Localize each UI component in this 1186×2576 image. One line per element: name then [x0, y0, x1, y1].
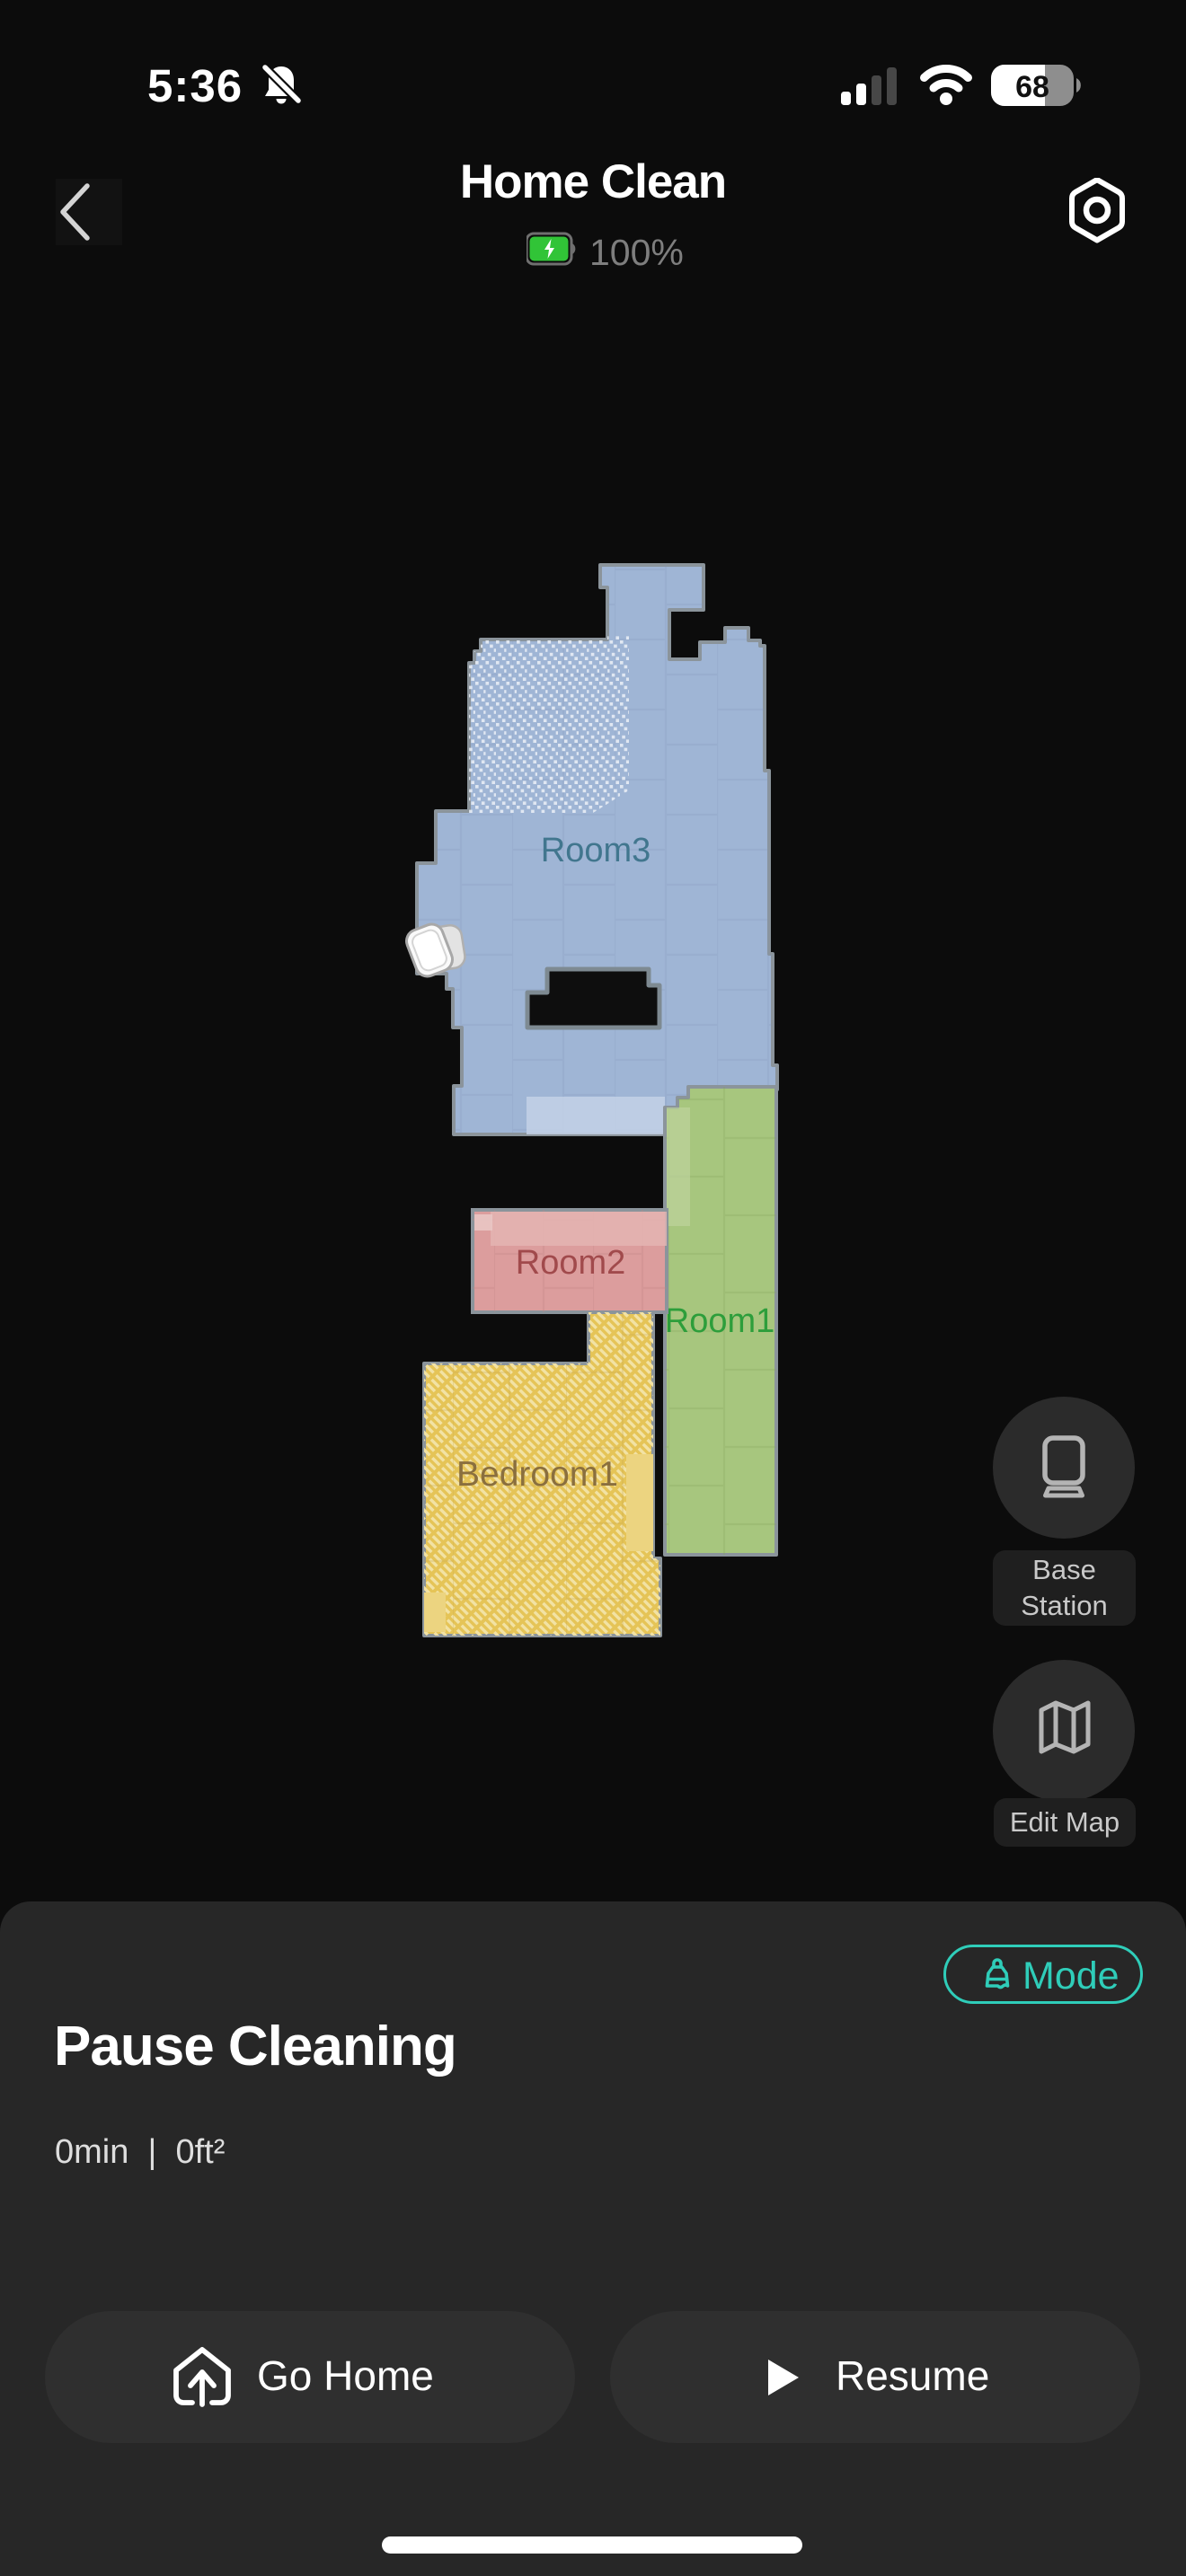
svg-text:Room1: Room1	[665, 1302, 775, 1340]
svg-text:Bedroom1: Bedroom1	[456, 1455, 618, 1494]
svg-text:68: 68	[1015, 70, 1049, 104]
svg-text:Room3: Room3	[541, 832, 651, 869]
svg-text:Room2: Room2	[516, 1244, 626, 1282]
